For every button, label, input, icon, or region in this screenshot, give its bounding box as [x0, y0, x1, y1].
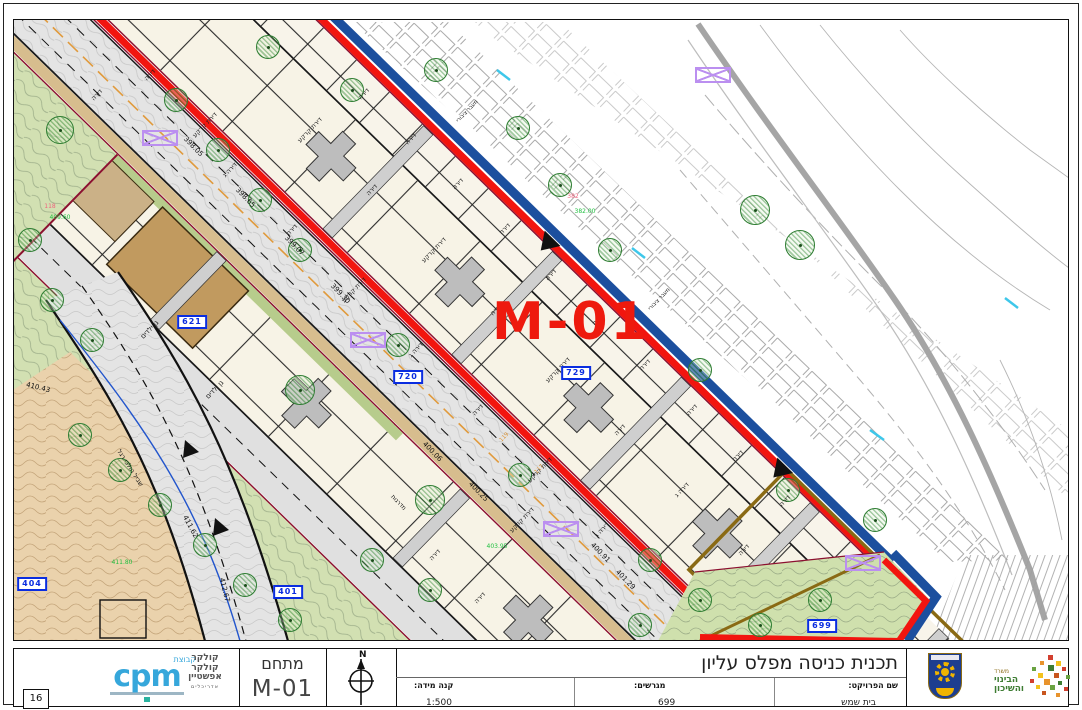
north-label: N: [359, 650, 367, 660]
ministry-logo: משרד הבינוי והשיכון: [980, 653, 1080, 703]
architect-name: אפשטיין: [172, 673, 238, 683]
ministry-logo-icon: [1028, 653, 1074, 701]
plots-label: מגרשים:: [634, 681, 665, 690]
sheet-number: 16: [23, 689, 49, 709]
divider: [906, 649, 907, 706]
divider: [774, 678, 775, 706]
divider: [574, 678, 575, 706]
map-frame: [13, 19, 1069, 641]
architect-title: אדריכלים: [172, 684, 238, 690]
compound-value: M-01: [239, 676, 326, 702]
drawing-title: תכנית כניסה מפלס עליון: [701, 652, 898, 674]
architect-logo: קולקר קולקר אפשטיין אדריכלים: [172, 654, 238, 690]
north-arrow-cell: N: [326, 649, 396, 710]
cpm-mark-icon: [144, 697, 150, 702]
consultants-cell: 16 קבוצת cpm קולקר קולקר אפשטיין אדריכלי…: [14, 649, 239, 706]
compound-cell: מתחם M-01: [239, 649, 326, 702]
compound-label: מתחם: [239, 654, 326, 673]
ministry-word: והשיכון: [994, 685, 1024, 694]
title-block: 16 קבוצת cpm קולקר קולקר אפשטיין אדריכלי…: [13, 648, 1069, 707]
project-name-label: שם הפרויקט:: [848, 681, 898, 690]
municipality-emblem-icon: [928, 653, 962, 699]
field-row: קנה מידה: 1:500 מגרשים: 699 שם הפרויקט: …: [396, 677, 906, 706]
drawing-title-cell: תכנית כניסה מפלס עליון קנה מידה: 1:500 מ…: [396, 649, 906, 706]
plan-sheet: { "colors":{"boundary_red":"#f2150f","bo…: [0, 0, 1082, 707]
scale-label: קנה מידה:: [414, 681, 453, 690]
